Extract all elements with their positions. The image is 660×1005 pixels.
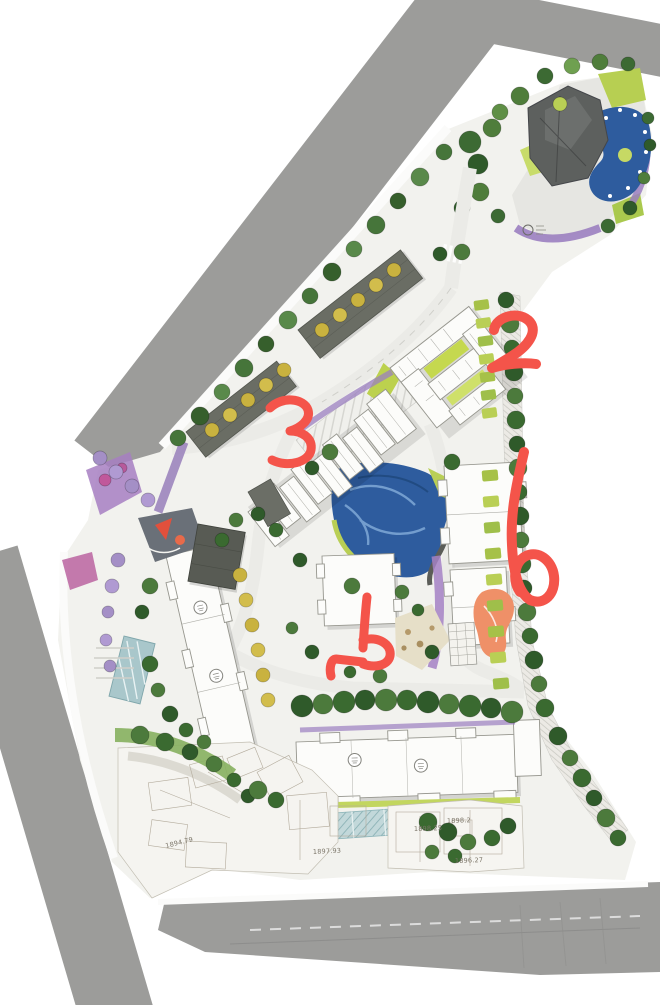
elevation-label: 1896.27 [455,856,484,865]
elevation-label: 1898.25 [414,824,443,833]
pond-islet [618,148,632,162]
central-building [316,553,403,630]
elevation-label: 1898.2 [447,816,471,825]
garden-pavilion-plan [448,622,477,666]
play-structure-orange [175,535,185,545]
building-badge [414,759,427,772]
road-median-notch [117,288,153,325]
building-badge [348,753,361,766]
elevation-label: 1897.93 [313,847,342,856]
south-road [158,882,660,975]
community-building-dark [187,524,247,593]
site-plan-canvas: 1894.79 1897.93 1898.2 1898.25 1896.27 2… [0,0,660,1005]
master-plan-drawing: 1894.79 1897.93 1898.2 1898.25 1896.27 2… [0,0,660,1005]
